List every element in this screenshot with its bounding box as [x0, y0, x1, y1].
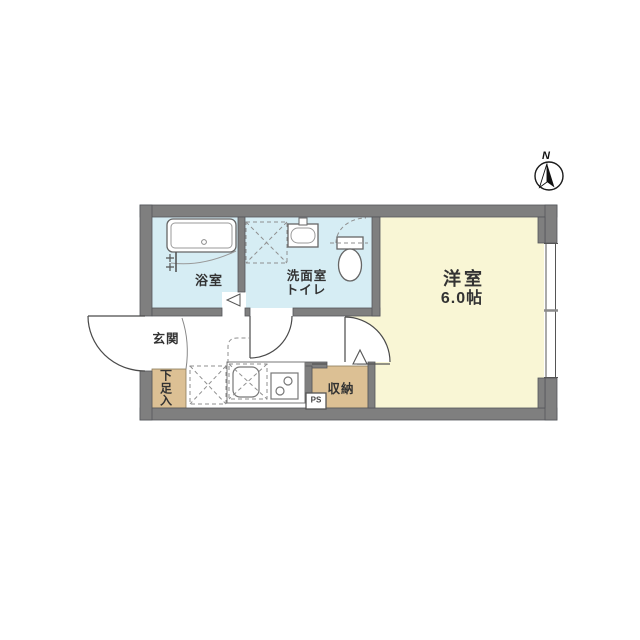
window — [544, 243, 558, 378]
entrance-step-curve — [182, 318, 187, 369]
entrance-label: 玄関 — [152, 333, 179, 347]
floorplan-canvas: 浴室 洗面室 トイレ 洋室 6.0帖 玄関 下足入 収納 PS N — [0, 0, 640, 640]
wall-hall-washroom-left — [245, 308, 250, 316]
wall-top — [140, 205, 557, 217]
bathroom-label: 浴室 — [195, 274, 223, 288]
wall-hall-washroom-right — [293, 308, 380, 316]
kitchen-counter-icon — [227, 362, 305, 403]
pipe-space-label: PS — [311, 397, 322, 406]
wall-right-lower — [545, 378, 557, 420]
washroom-door — [250, 316, 292, 358]
wall-left-upper — [140, 205, 152, 316]
washroom-label-line1: 洗面室 — [287, 270, 328, 284]
wall-closet-left — [305, 366, 312, 394]
kitchen-dashed-guide — [228, 338, 251, 363]
entrance-door — [88, 316, 145, 371]
western-room-size-label: 6.0帖 — [441, 290, 483, 308]
wall-left-lower — [140, 371, 152, 420]
closet-label: 収納 — [327, 383, 354, 397]
western-room-label: 洋室 — [443, 270, 485, 290]
toilet-icon — [337, 237, 363, 281]
bathtub-icon — [167, 219, 236, 252]
compass-icon — [535, 162, 563, 190]
wall-right-upper — [545, 205, 557, 243]
window-jamb-lower — [538, 378, 545, 408]
wall-hall-bath — [152, 308, 222, 316]
window-jamb-upper — [538, 217, 545, 243]
washroom-label-line2: トイレ — [286, 284, 327, 298]
stove-icon — [271, 373, 298, 399]
shoe-cabinet-label: 下足入 — [159, 369, 174, 407]
wall-bottom — [140, 408, 557, 420]
wall-bath-washroom — [238, 217, 245, 292]
wall-washroom-western — [372, 217, 380, 316]
western-room-floor — [375, 217, 545, 408]
compass-north-label: N — [542, 150, 550, 162]
wall-closet-right — [368, 362, 375, 408]
floorplan-drawing — [0, 0, 640, 640]
appliance-space-dashed-icon — [190, 366, 226, 404]
